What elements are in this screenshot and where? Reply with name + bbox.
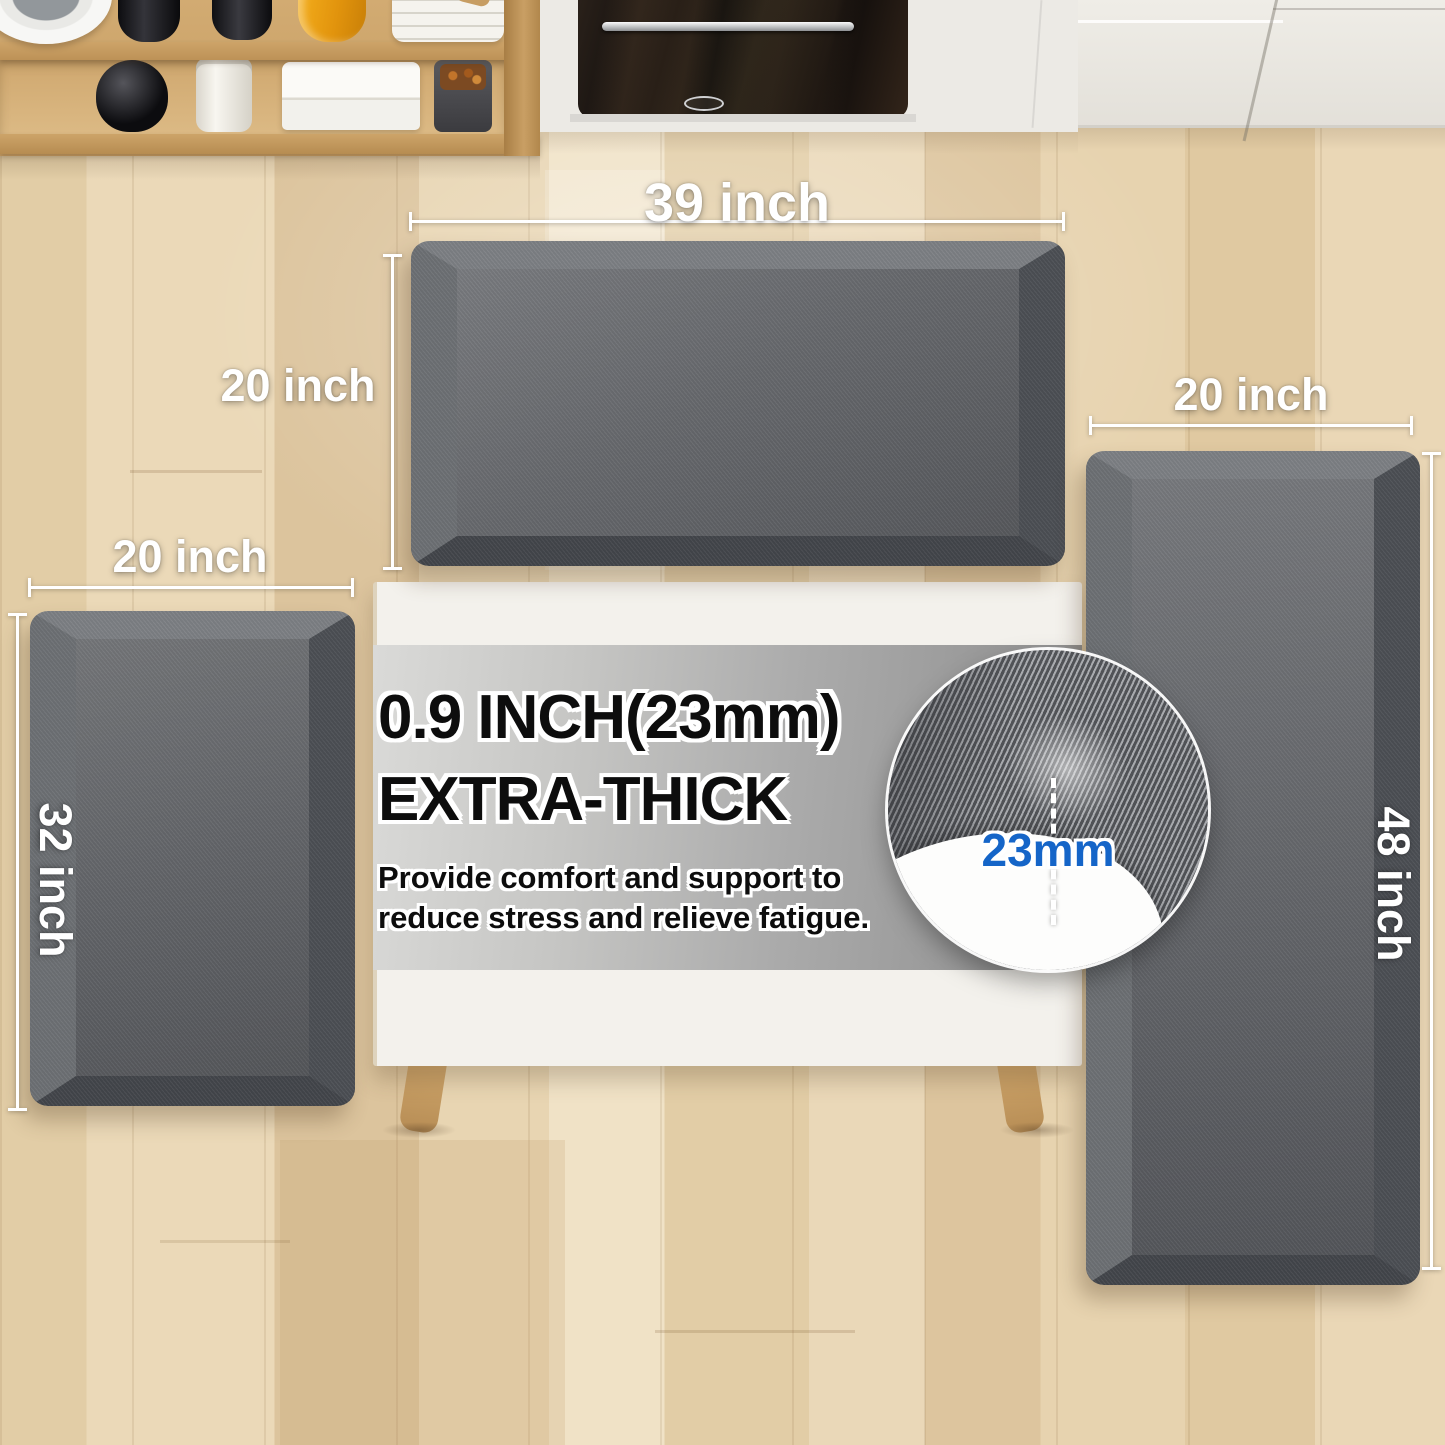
orange-jar xyxy=(298,0,366,42)
pepper-grinder xyxy=(118,0,180,42)
product-image: 39 inch 20 inch 20 inch 32 inch 20 inch … xyxy=(0,0,1445,1445)
callout-title-line2: EXTRA-THICK xyxy=(378,764,787,835)
dimension-label-left-mat-width: 20 inch xyxy=(65,531,315,583)
dimension-line-top-mat-height xyxy=(391,254,394,570)
oven-logo xyxy=(684,96,724,111)
table-leg-shadow xyxy=(382,1122,456,1138)
floor-plank-seam xyxy=(655,1330,855,1333)
floor-plank-seam xyxy=(130,470,262,473)
dimension-label-left-mat-height: 32 inch xyxy=(35,769,81,991)
thickness-value-label: 23mm xyxy=(888,823,1208,877)
floor-plank-patch xyxy=(280,1140,565,1445)
oven xyxy=(540,0,1078,132)
dimension-label-right-mat-width: 20 inch xyxy=(1126,369,1376,421)
oven-door xyxy=(578,0,908,118)
stone-bowl xyxy=(0,0,112,44)
wood-shelf xyxy=(0,0,540,156)
shelf-board xyxy=(0,42,540,60)
dimension-line-right-mat-height xyxy=(1430,452,1433,1270)
folded-towels xyxy=(282,62,420,130)
table-leg-shadow xyxy=(1000,1122,1074,1138)
pepper-grinder xyxy=(212,0,272,40)
oven-panel-seam xyxy=(1032,0,1043,128)
shelf-interior xyxy=(0,58,506,136)
white-cabinets xyxy=(1078,0,1445,128)
cabinet-seam xyxy=(1273,8,1445,10)
callout-body-line2: reduce stress and relieve fatigue. xyxy=(378,900,869,936)
dimension-label-right-mat-height: 48 inch xyxy=(1373,773,1419,995)
cabinet-highlight xyxy=(1078,20,1283,23)
dimension-line-right-mat-width xyxy=(1089,424,1413,427)
callout-title-line1: 0.9 INCH(23mm) xyxy=(378,682,839,753)
dimension-label-top-mat-width: 39 inch xyxy=(537,172,937,234)
dimension-line-left-mat-height xyxy=(16,613,19,1111)
dimension-line-left-mat-width xyxy=(28,586,354,589)
oven-trim xyxy=(570,114,916,122)
floor-plank-seam xyxy=(160,1240,290,1243)
plate-stack xyxy=(392,0,504,42)
black-jar xyxy=(96,60,168,132)
shelf-side-panel xyxy=(504,0,540,156)
spice-jar xyxy=(434,60,492,132)
oven-handle xyxy=(602,22,854,31)
shelf-floor-shadow xyxy=(0,152,540,180)
dimension-label-top-mat-height: 20 inch xyxy=(183,360,413,412)
callout-body-line1: Provide comfort and support to xyxy=(378,860,841,896)
mat-39x20 xyxy=(411,241,1065,566)
thickness-inset-circle: 23mm xyxy=(888,650,1208,970)
white-ceramic-jar xyxy=(196,58,252,132)
shelf-board xyxy=(0,134,540,154)
